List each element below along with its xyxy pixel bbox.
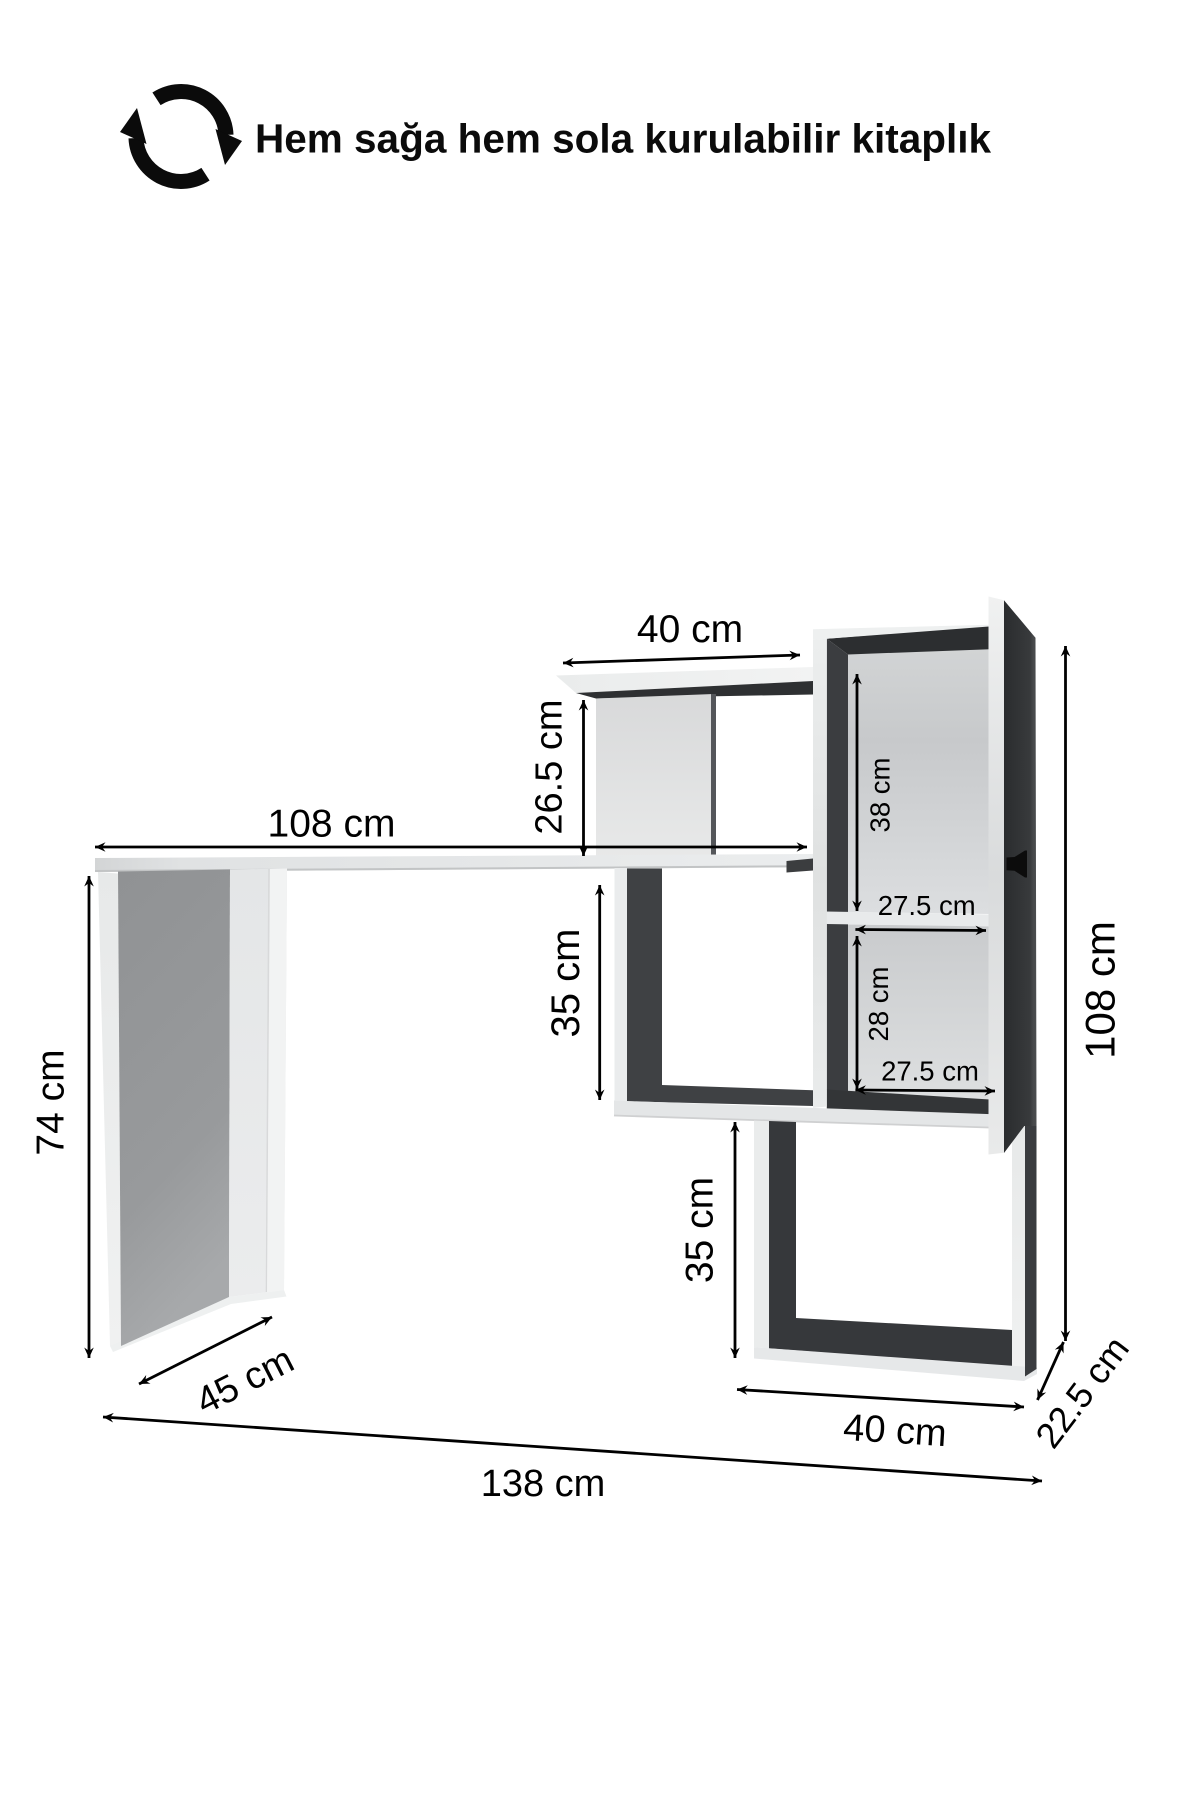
svg-text:27.5 cm: 27.5 cm xyxy=(881,1056,979,1087)
svg-text:38 cm: 38 cm xyxy=(865,758,896,833)
svg-text:74 cm: 74 cm xyxy=(30,1049,73,1155)
svg-text:27.5 cm: 27.5 cm xyxy=(878,890,976,921)
svg-text:28 cm: 28 cm xyxy=(863,967,894,1042)
svg-text:108 cm: 108 cm xyxy=(268,803,396,846)
svg-text:40 cm: 40 cm xyxy=(637,608,743,651)
svg-text:138 cm: 138 cm xyxy=(481,1463,606,1505)
svg-text:26.5 cm: 26.5 cm xyxy=(529,699,571,834)
svg-text:108 cm: 108 cm xyxy=(1077,921,1124,1059)
svg-text:40 cm: 40 cm xyxy=(842,1407,948,1455)
svg-text:35 cm: 35 cm xyxy=(544,929,588,1038)
svg-text:Hem sağa hem sola kurulabilir: Hem sağa hem sola kurulabilir kitaplık xyxy=(255,116,991,162)
svg-text:35 cm: 35 cm xyxy=(679,1177,722,1283)
